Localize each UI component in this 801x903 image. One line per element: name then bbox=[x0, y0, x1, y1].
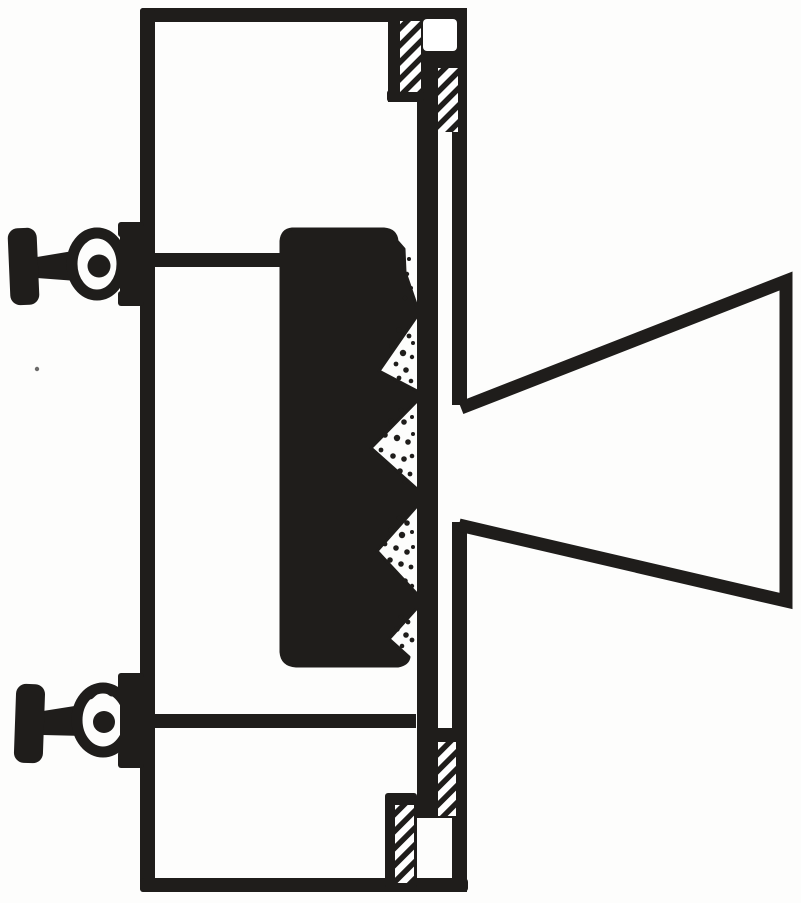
bottom-screw-left-threads bbox=[395, 805, 414, 883]
upper-clamp-knob bbox=[7, 227, 39, 305]
plate-left-rail bbox=[417, 54, 438, 818]
upper-clamp-pivot-dot bbox=[88, 255, 111, 278]
block-body-sawtooth-edge bbox=[281, 229, 417, 666]
lower-clamp-knob bbox=[14, 684, 46, 764]
upper-thumbscrew-clamp bbox=[7, 222, 155, 306]
lower-clamp-bracket bbox=[120, 673, 144, 768]
bottom-screw-slot-threads bbox=[438, 742, 456, 816]
boss-top-window bbox=[423, 19, 457, 51]
flaring-horn bbox=[459, 281, 786, 601]
connecting-rod-lower bbox=[150, 714, 416, 728]
connecting-rod-upper bbox=[150, 253, 286, 267]
top-screw-left-threads bbox=[400, 21, 421, 92]
top-screw-slot-threads bbox=[438, 68, 458, 132]
sectional-drawing bbox=[0, 0, 801, 903]
lower-thumbscrew-clamp bbox=[14, 673, 155, 768]
frame-top-bar bbox=[140, 8, 402, 22]
technical-drawing-canvas bbox=[0, 0, 801, 903]
upper-clamp-bracket bbox=[120, 222, 144, 306]
frame-bottom-bar bbox=[140, 878, 468, 892]
lower-clamp-pivot-dot bbox=[93, 711, 115, 733]
serrated-carbon-block bbox=[281, 229, 417, 666]
scan-speck bbox=[35, 367, 39, 371]
plate-right-rail-lower bbox=[452, 522, 467, 892]
